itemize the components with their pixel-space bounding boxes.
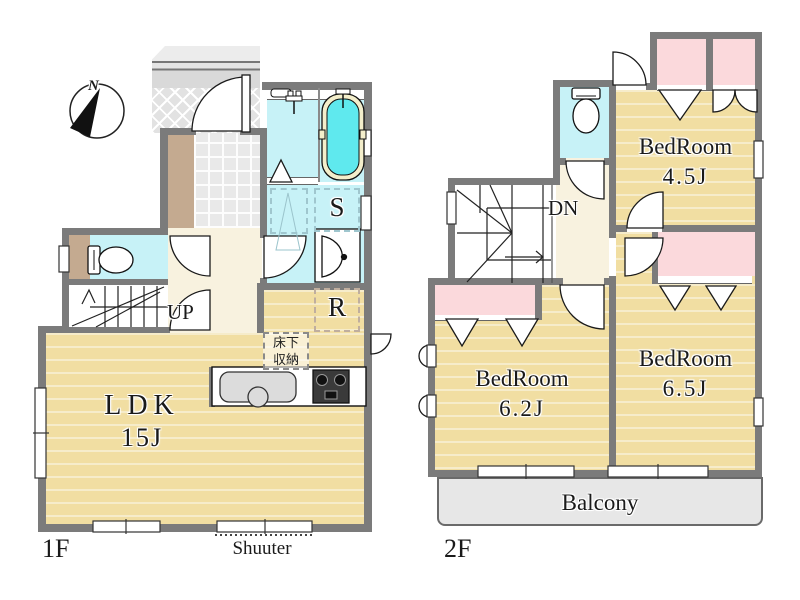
floor1-label: 1F (42, 534, 69, 564)
bedroom-65-size-label: 6.5J (616, 376, 755, 402)
wall (448, 178, 556, 185)
wall (62, 327, 170, 333)
wall (652, 232, 658, 284)
wall (62, 279, 168, 285)
wall (262, 82, 372, 90)
entry-porch-steps (152, 46, 260, 88)
wall (428, 278, 435, 477)
wall (646, 83, 657, 90)
ldk-room-label: LDK (62, 390, 222, 422)
toilet-2f-floor (560, 87, 609, 158)
closet-65 (658, 232, 755, 276)
genkan-tile-floor (194, 133, 262, 228)
wall (160, 128, 168, 235)
genkan-step-strip (168, 133, 194, 228)
bedroom-62-name-label: BedRoom (435, 366, 609, 392)
entry-tile-approach (152, 88, 260, 133)
wall (755, 32, 762, 477)
bathroom-laundry-floor (267, 90, 364, 182)
underfloor-storage-label-line2: 収納 (265, 351, 307, 368)
closet-62-band (435, 315, 535, 321)
wall (609, 225, 627, 232)
wall (609, 276, 616, 477)
wall (662, 225, 762, 232)
wall (38, 326, 46, 524)
wall (257, 283, 264, 333)
closet-45-right (713, 39, 755, 85)
storage-triangle-box (270, 188, 308, 234)
bedroom-45-size-label: 4.5J (616, 164, 755, 190)
bedroom-65-name-label: BedRoom (616, 346, 755, 372)
toilet-1f-floor (90, 235, 168, 279)
wall (428, 470, 762, 477)
wall (260, 128, 267, 238)
bath-counter-band (320, 90, 364, 100)
kitchen-back-door-swing (371, 334, 391, 354)
underfloor-storage-box: 床下 収納 (263, 332, 309, 370)
wall (448, 178, 455, 285)
storage-s-label: S (314, 192, 360, 223)
stairs-down-label: DN (548, 196, 578, 221)
laundry-counter-band (267, 90, 318, 100)
wall (62, 228, 168, 235)
wall (706, 32, 713, 90)
wall (604, 278, 616, 285)
compass-north-label: N (88, 78, 99, 95)
wall (364, 82, 372, 532)
ldk-size-label: 15J (62, 423, 222, 453)
wall (553, 80, 616, 87)
shutter-label: Shuuter (202, 538, 322, 560)
refrigerator-label: R (314, 292, 360, 323)
closet-62 (435, 285, 535, 315)
wall (535, 278, 542, 320)
wall (428, 278, 563, 285)
closet-45-left (657, 39, 706, 85)
toilet-1f-side-strip (69, 235, 90, 279)
hallway-2f (556, 158, 609, 285)
underfloor-storage-label-line1: 床下 (265, 334, 307, 351)
bedroom-45-name-label: BedRoom (616, 134, 755, 160)
wall (160, 128, 196, 135)
bedroom-45-hall-door-swing (613, 52, 646, 85)
closet-65-band (658, 276, 752, 284)
stairs-2f-floor (455, 185, 551, 283)
wall (318, 88, 320, 182)
bedroom-62-size-label: 6.2J (435, 396, 609, 422)
floor-plan-canvas: 床下 収納 N LDK 15J UP S R Shuuter 1F DN Bed… (0, 0, 800, 600)
washroom-slide-door (267, 177, 318, 185)
floor2-label: 2F (444, 534, 471, 564)
wall (609, 83, 616, 238)
wall (650, 32, 657, 90)
stairs-1f-floor (69, 285, 168, 327)
stairs-up-label: UP (167, 300, 194, 325)
wall (553, 158, 566, 165)
balcony-label: Balcony (437, 490, 763, 516)
wall (38, 524, 372, 532)
wall (553, 80, 560, 185)
